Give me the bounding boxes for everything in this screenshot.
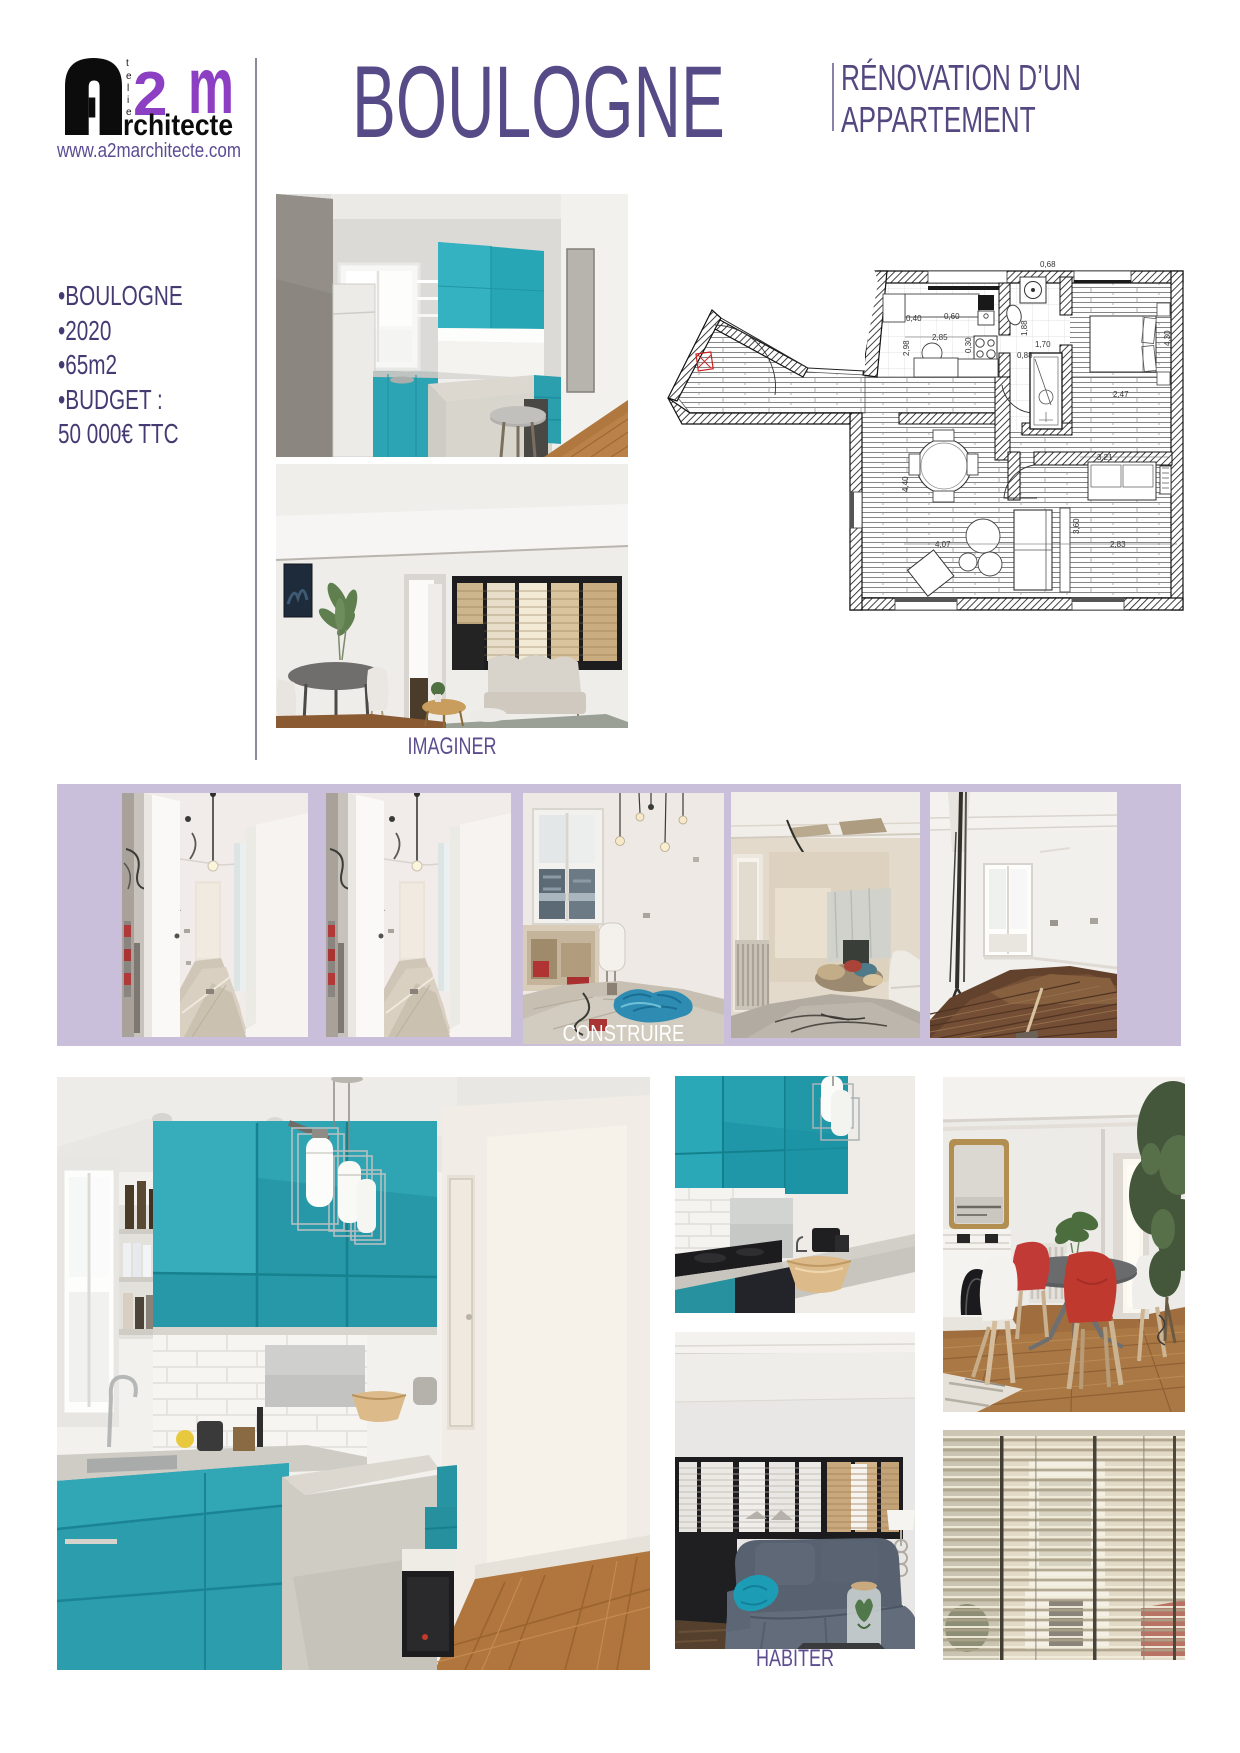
- svg-text:2,98: 2,98: [902, 340, 911, 356]
- svg-text:0,88: 0,88: [1017, 351, 1033, 360]
- svg-text:l: l: [127, 83, 129, 94]
- svg-text:4,40: 4,40: [901, 476, 910, 492]
- svg-text:0,40: 0,40: [906, 314, 922, 323]
- svg-text:0,30: 0,30: [964, 337, 973, 353]
- svg-text:e: e: [126, 71, 132, 82]
- svg-text:1,88: 1,88: [1020, 320, 1029, 336]
- svg-text:1,70: 1,70: [1035, 340, 1051, 349]
- svg-text:www.a2marchitecte.com: www.a2marchitecte.com: [57, 139, 241, 162]
- svg-text:2,47: 2,47: [1113, 390, 1129, 399]
- svg-text:2,85: 2,85: [932, 333, 948, 342]
- svg-text:3,21: 3,21: [1097, 453, 1113, 462]
- svg-text:t: t: [126, 58, 129, 69]
- svg-text:4,30: 4,30: [1163, 330, 1172, 346]
- svg-text:4,07: 4,07: [935, 540, 951, 549]
- svg-text:i: i: [127, 95, 129, 106]
- svg-text:0,60: 0,60: [944, 312, 960, 321]
- svg-text:2,83: 2,83: [1110, 540, 1126, 549]
- svg-text:3,60: 3,60: [1072, 518, 1081, 534]
- svg-text:rchitecte: rchitecte: [123, 109, 233, 142]
- svg-text:0,68: 0,68: [1040, 260, 1056, 269]
